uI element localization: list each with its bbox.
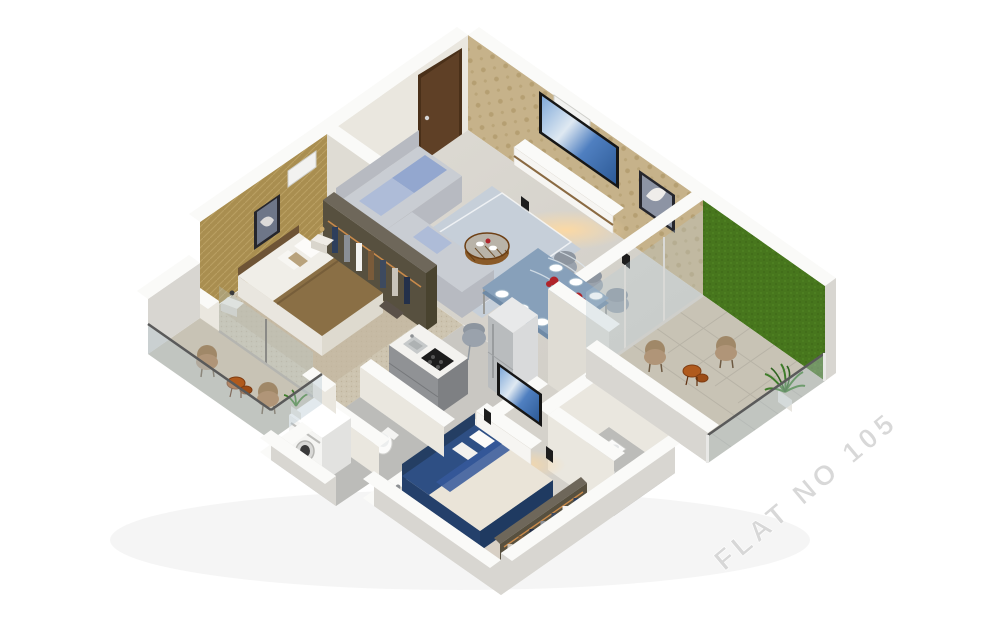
grass-wall-end-pillar (825, 278, 836, 381)
burner (439, 360, 443, 364)
dining-chair (462, 329, 486, 347)
door-handle (425, 116, 429, 120)
burner (428, 360, 432, 364)
dining-plate (569, 278, 583, 286)
wardrobe-side (426, 265, 437, 331)
floorplan-3d-scene: FLAT NO 105 (0, 0, 982, 618)
dining-plate (495, 290, 509, 298)
table-lamp (320, 227, 325, 232)
railing-post (706, 435, 709, 463)
coffee-table (465, 233, 509, 265)
burner (436, 365, 440, 369)
faucet (410, 334, 414, 338)
floorplan-render-canvas: FLAT NO 105 (0, 0, 982, 618)
railing-post (823, 353, 826, 381)
dining-plate (549, 264, 563, 272)
burner (431, 355, 435, 359)
coffee-table-plate (489, 246, 497, 251)
coffee-table-plate (476, 242, 484, 247)
coffee-table-flower (486, 239, 491, 244)
